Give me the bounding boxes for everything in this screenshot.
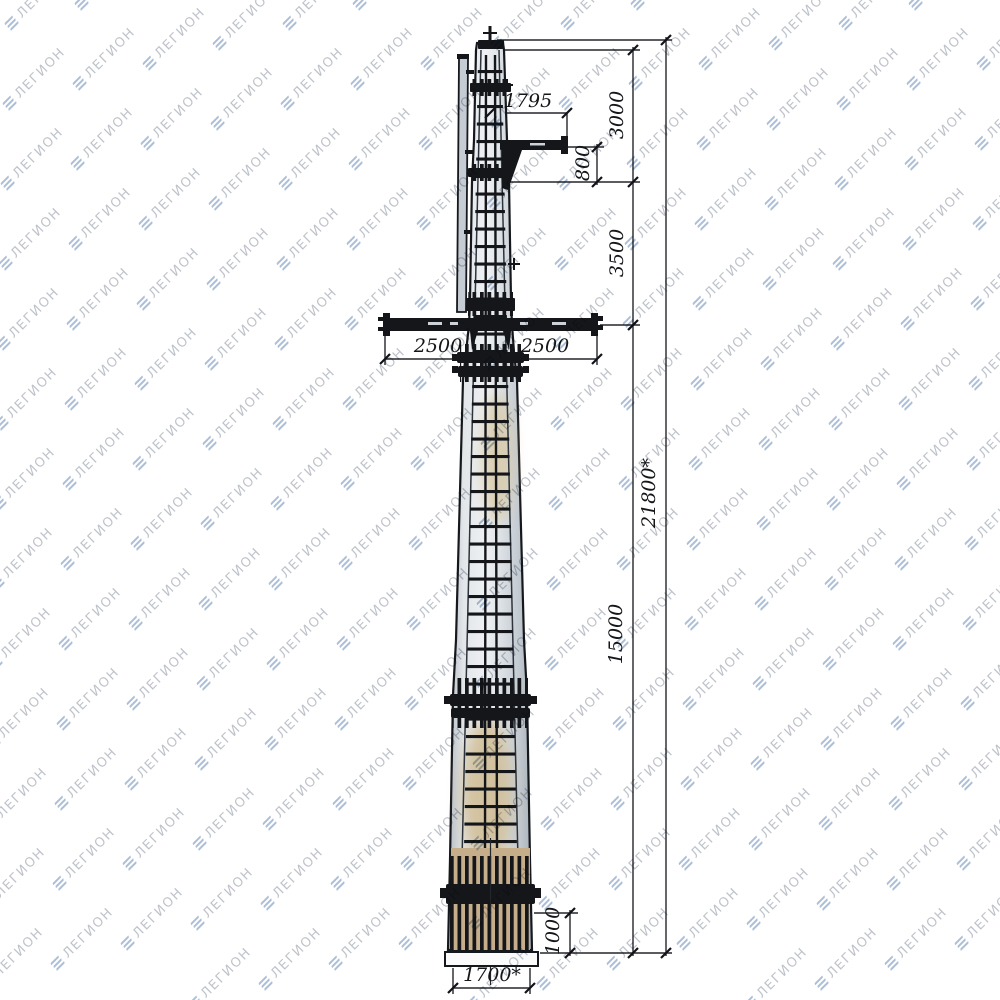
dim-3000-label: 3000 — [606, 91, 628, 139]
dim-800-label: 800 — [572, 145, 594, 181]
dim-21800-total-height-label: 21800* — [638, 458, 660, 529]
flange-joint-upper-3 — [466, 292, 515, 316]
flange-joint-mid — [444, 678, 537, 728]
pole-assembly — [378, 26, 603, 985]
pole-technical-drawing: 1795 3000 800 3500 2500 2500 21800* 1500… — [0, 0, 1000, 1000]
dim-3500-label: 3500 — [606, 229, 628, 277]
pole-top-rod — [478, 26, 504, 49]
dim-1795-label: 1795 — [504, 90, 552, 112]
dim-2500-left-label: 2500 — [413, 335, 462, 357]
flange-joint-main — [452, 344, 529, 382]
dim-1000-label: 1000 — [542, 907, 564, 955]
dim-15000-label: 15000 — [605, 604, 627, 664]
drawing-canvas: 1795 3000 800 3500 2500 2500 21800* 1500… — [0, 0, 1000, 1000]
dim-1700-base-label: 1700* — [463, 964, 521, 986]
dim-2500-right-label: 2500 — [520, 335, 569, 357]
